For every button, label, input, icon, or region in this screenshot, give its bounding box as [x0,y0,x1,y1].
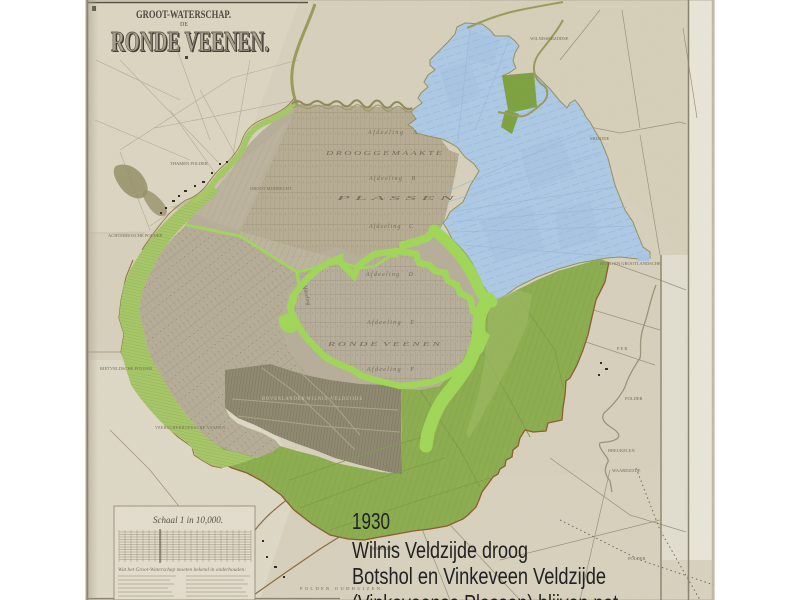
svg-text:Wilnis Veldzijde droog: Wilnis Veldzijde droog [352,537,528,563]
svg-text:Botshol en Vinkeveen Veldzijde: Botshol en Vinkeveen Veldzijde [352,563,606,589]
svg-text:(Vinkeveense Plassen) blijven: (Vinkeveense Plassen) blijven nat [352,590,618,600]
svg-text:1930: 1930 [352,508,390,534]
